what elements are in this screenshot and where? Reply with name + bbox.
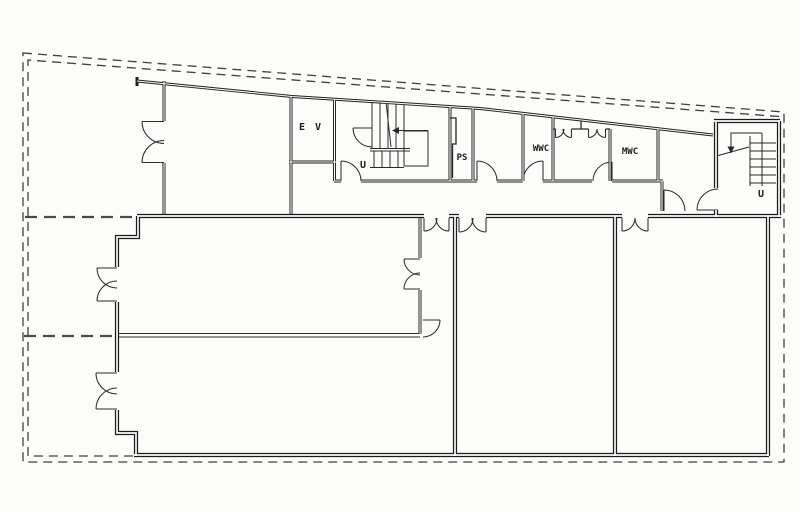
floor-plan-sheet: E V U PS WWC MWC U [0, 0, 800, 512]
door-room-a [477, 161, 497, 181]
door-stairs-west [341, 161, 361, 181]
door-terrace-lower [96, 373, 117, 409]
door-vestibule-west [404, 259, 420, 289]
thin-partition-lines [119, 334, 420, 338]
upper-wing-walls-black [137, 77, 713, 334]
door-middle-room-top [459, 218, 486, 232]
door-corridor-end [664, 190, 685, 211]
door-right-room-top [622, 218, 648, 231]
room-label-stairs-west: U [360, 160, 366, 171]
room-label-elevator: E V [299, 122, 323, 133]
door-stairs-west-inner [353, 128, 372, 147]
door-vestibule-south [423, 320, 440, 337]
floor-plan-drawing: E V U PS WWC MWC U [0, 0, 800, 512]
room-label-mens-wc: MWC [622, 147, 638, 157]
upper-wing-walls-core [137, 81, 713, 334]
terrace-dashed-lines [24, 217, 136, 336]
mid-partition-double-line [119, 334, 420, 338]
door-womens-wc [523, 161, 543, 181]
door-vestibule-top [424, 218, 449, 231]
room-label-womens-wc: WWC [533, 144, 549, 154]
room-label-stairs-east: U [758, 189, 764, 200]
door-terrace-upper [97, 268, 117, 301]
doors [96, 122, 718, 410]
stairs-east-treads [717, 133, 777, 186]
stairs-east-lines [717, 133, 777, 186]
door-upper-room-west [142, 122, 164, 163]
upper-wing-walls [137, 77, 713, 334]
door-wc-stalls [556, 129, 606, 138]
door-stairs-east [697, 189, 718, 210]
room-label-pipe-shaft: PS [457, 153, 468, 163]
stairs-west-lines [370, 102, 428, 168]
stairs-west-treads [370, 102, 428, 168]
